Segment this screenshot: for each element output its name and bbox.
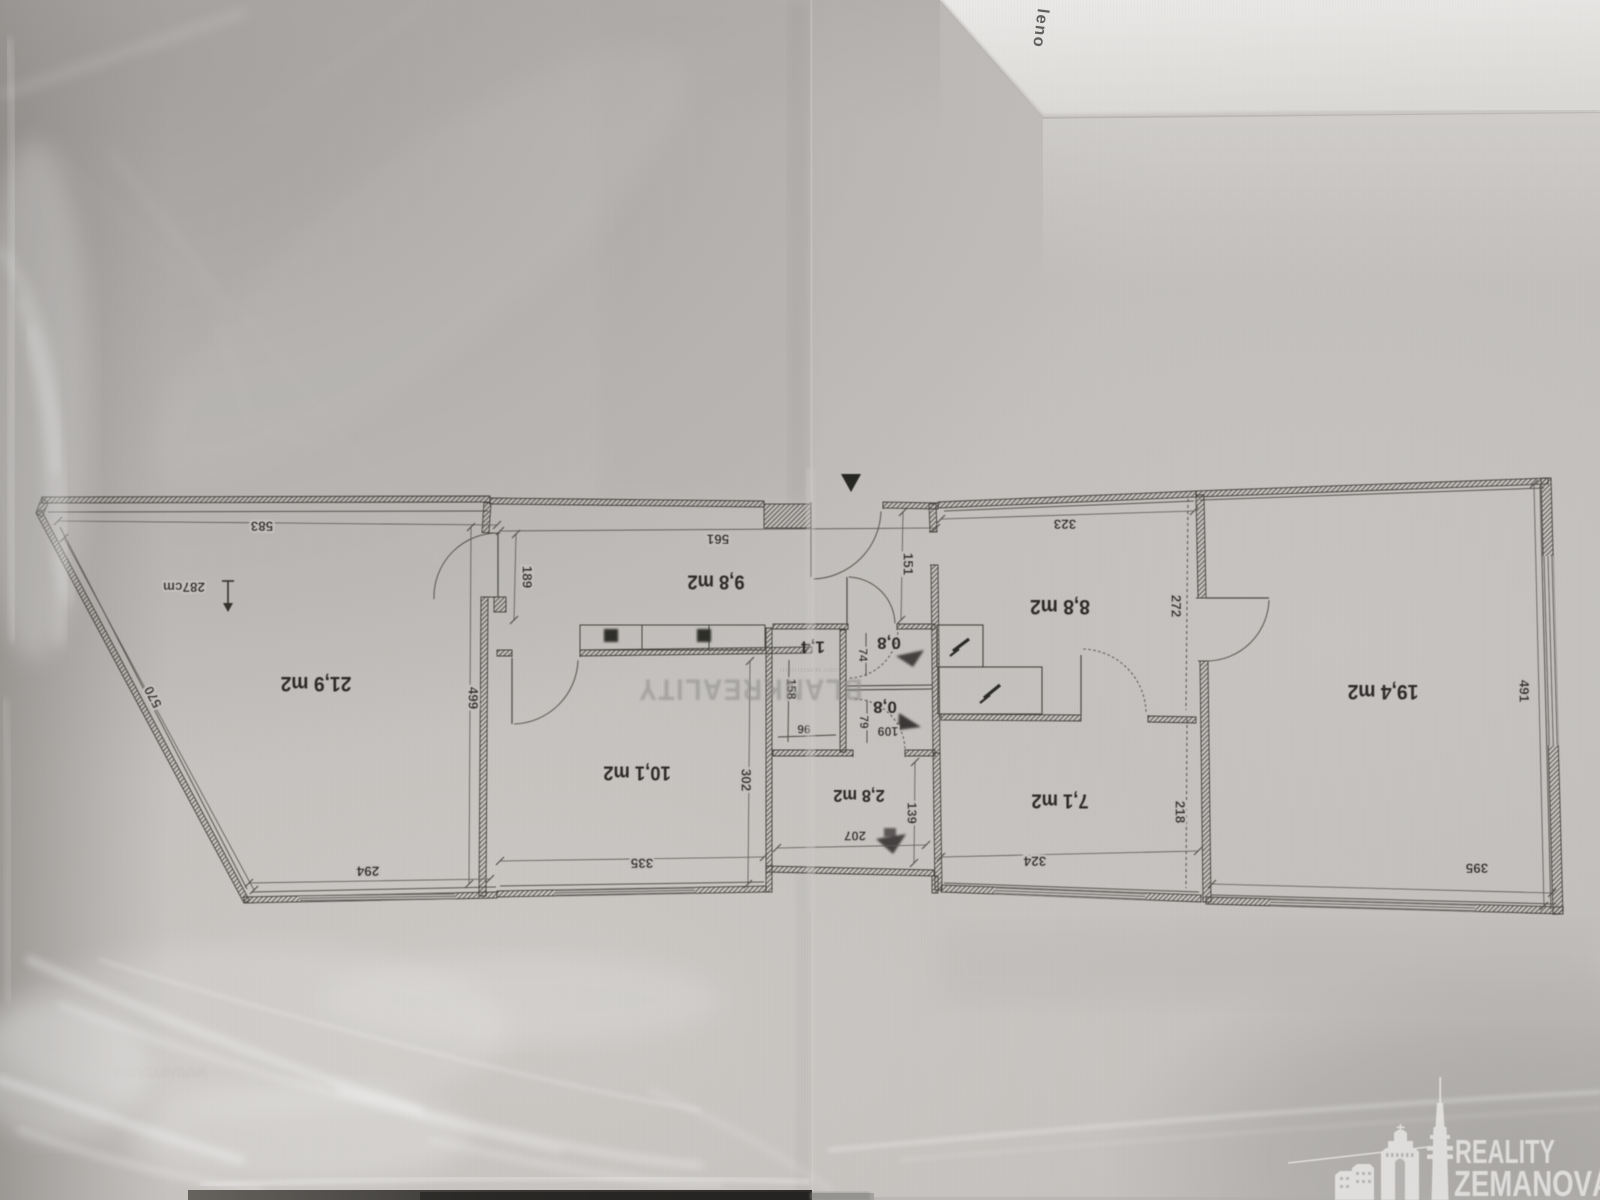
svg-text:7,1 m2: 7,1 m2 <box>1031 789 1088 811</box>
svg-text:8,8 m2: 8,8 m2 <box>1030 595 1090 618</box>
svg-text:189: 189 <box>520 566 535 589</box>
svg-text:2,8 m2: 2,8 m2 <box>833 786 885 807</box>
svg-text:294: 294 <box>356 864 379 879</box>
svg-text:10,1 m2: 10,1 m2 <box>603 761 670 783</box>
svg-text:79: 79 <box>857 715 871 729</box>
svg-text:0,8: 0,8 <box>873 698 897 717</box>
svg-text:272: 272 <box>1169 595 1184 618</box>
svg-text:BLANKREALITY: BLANKREALITY <box>638 673 863 706</box>
svg-text:302: 302 <box>739 769 754 792</box>
svg-text:491: 491 <box>1517 680 1532 703</box>
svg-text:139: 139 <box>905 802 920 824</box>
svg-text:0,8: 0,8 <box>877 634 901 653</box>
svg-text:335: 335 <box>630 856 653 871</box>
svg-text:395: 395 <box>1465 861 1488 876</box>
svg-text:207: 207 <box>844 829 866 844</box>
svg-text:ZEMANOVÁ: ZEMANOVÁ <box>1454 1163 1600 1200</box>
svg-text:287cm: 287cm <box>163 580 205 595</box>
svg-text:323: 323 <box>1053 517 1076 532</box>
svg-text:218: 218 <box>1173 801 1188 824</box>
svg-text:109: 109 <box>878 724 899 738</box>
svg-text:324: 324 <box>1023 854 1046 869</box>
svg-text:19,4 m2: 19,4 m2 <box>1348 680 1419 703</box>
svg-text:151: 151 <box>901 553 916 576</box>
svg-text:21,9 m2: 21,9 m2 <box>281 672 352 695</box>
svg-text:499: 499 <box>466 687 481 710</box>
svg-text:HOBBY NEMOVITOSTI: HOBBY NEMOVITOSTI <box>780 666 844 672</box>
svg-text:583: 583 <box>250 519 273 534</box>
svg-text:9,8 m2: 9,8 m2 <box>687 570 744 592</box>
svg-text:74: 74 <box>856 648 870 662</box>
svg-text:561: 561 <box>706 532 729 547</box>
